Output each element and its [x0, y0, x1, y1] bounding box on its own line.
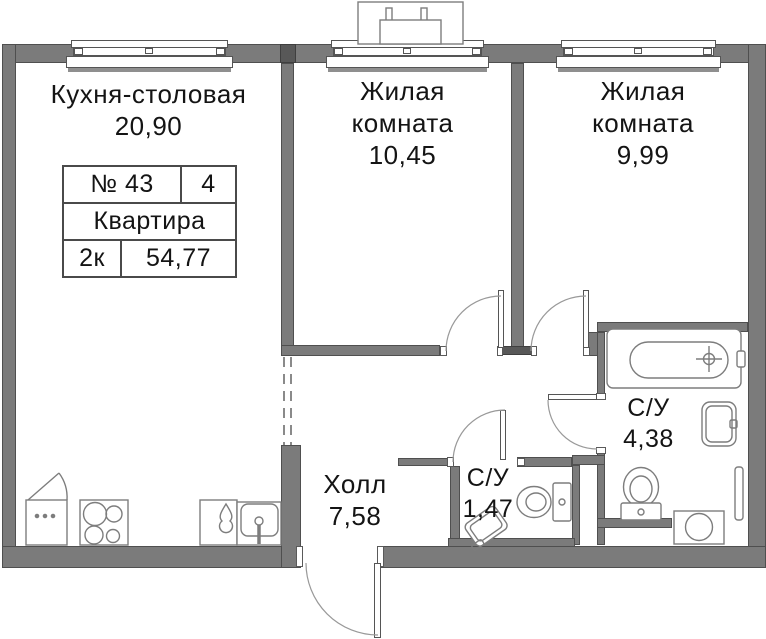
living1-name-line2: комната: [294, 107, 511, 139]
wc-small-area: 1,47: [446, 494, 530, 525]
wall-left: [2, 44, 16, 568]
wall-hall-top: [281, 345, 440, 356]
door-jamb: [296, 546, 303, 567]
wall-wc-big-left-upper: [597, 332, 605, 394]
wc-big-name: С/У: [606, 393, 691, 424]
door-leaf-wc-big: [548, 394, 597, 400]
washbasin-icon: [702, 402, 737, 446]
wall-wc-small-bottom: [448, 538, 575, 547]
dashed-boundary-line: [290, 357, 292, 445]
wall-wc-small-top-left: [398, 458, 453, 466]
wc-big-area: 4,38: [606, 424, 691, 455]
living2-name-line1: Жилая: [527, 75, 759, 107]
window-sill-shadow: [68, 68, 231, 72]
window-mark: [564, 48, 573, 55]
hall-area: 7,58: [290, 500, 420, 532]
door-jamb: [596, 447, 606, 454]
door-arc-living2: [531, 296, 586, 351]
door-jamb: [440, 346, 447, 356]
apartment-rooms-code: 2к: [64, 241, 120, 276]
kitchen-name: Кухня-столовая: [16, 78, 281, 110]
apartment-unit-count: 4: [180, 167, 235, 202]
towel-rail-icon: [735, 467, 743, 520]
apartment-number: № 43: [64, 167, 180, 202]
door-leaf-living2: [583, 290, 589, 348]
wall-shaft-cap: [572, 455, 605, 465]
toilet-icon: [621, 468, 661, 521]
door-jamb: [583, 347, 590, 356]
room-label-wc-small: С/У 1,47: [446, 463, 530, 525]
window-mark: [216, 48, 225, 55]
room-label-wc-big: С/У 4,38: [606, 393, 691, 455]
wall-wc-small-right: [572, 465, 580, 545]
apartment-type: Квартира: [64, 204, 235, 239]
vent-shaft: [580, 465, 595, 545]
window-mark: [145, 48, 153, 54]
room-label-kitchen: Кухня-столовая 20,90: [16, 78, 281, 142]
window-mark: [74, 48, 83, 55]
washing-machine-icon: [674, 511, 724, 544]
ac-basket-icon: [358, 2, 463, 44]
kitchen-area: 20,90: [16, 110, 281, 142]
wall-wc-big-left-lower: [597, 453, 605, 545]
window-mark: [634, 48, 642, 54]
teardrop-cabinet-icon: [200, 500, 237, 545]
wall-toilet-niche: [597, 518, 672, 528]
door-jamb: [596, 393, 606, 400]
window-sill-shadow: [328, 68, 487, 72]
bathtub-icon: [607, 329, 745, 388]
room-label-hall: Холл 7,58: [290, 468, 420, 532]
wall-living1-living2: [511, 63, 524, 348]
window-living1-sill: [326, 56, 489, 68]
wc-small-name: С/У: [446, 463, 530, 494]
living1-area: 10,45: [294, 139, 511, 171]
window-mark: [472, 48, 481, 55]
window-kitchen-sill: [66, 56, 233, 68]
apartment-total-area: 54,77: [120, 241, 235, 276]
living2-name-line2: комната: [527, 107, 759, 139]
wall-wc-big-top: [597, 322, 748, 332]
wall-divider-base: [502, 346, 532, 355]
window-mark: [403, 48, 411, 54]
info-row-type: Квартира: [64, 202, 235, 239]
wall-junction-top: [280, 44, 296, 63]
room-label-living2: Жилая комната 9,99: [527, 75, 759, 171]
apartment-info-table: № 43 4 Квартира 2к 54,77: [62, 165, 237, 278]
door-arc-living1: [446, 296, 501, 351]
door-arc-wc-small: [453, 410, 505, 462]
room-label-living1: Жилая комната 10,45: [294, 75, 511, 171]
floor-plan: Кухня-столовая 20,90 Жилая комната 10,45…: [0, 0, 766, 639]
wall-bottom-right: [377, 546, 766, 568]
living1-name-line1: Жилая: [294, 75, 511, 107]
dashed-boundary-line: [283, 357, 285, 445]
door-leaf-wc-small: [500, 410, 506, 460]
door-arc-wc-big: [548, 400, 597, 449]
fridge-icon: [26, 473, 67, 545]
hall-name: Холл: [290, 468, 420, 500]
window-mark: [334, 48, 343, 55]
door-jamb: [531, 346, 537, 356]
wall-kitchen-living1: [281, 63, 294, 356]
living2-area: 9,99: [527, 139, 759, 171]
stove-icon: [80, 500, 128, 545]
info-row-number: № 43 4: [64, 167, 235, 202]
window-living2-sill: [556, 56, 721, 68]
wall-bottom-left: [2, 546, 301, 568]
window-mark: [703, 48, 712, 55]
door-leaf-living1: [498, 290, 504, 348]
info-row-area: 2к 54,77: [64, 239, 235, 276]
door-leaf-entrance: [374, 563, 381, 638]
kitchen-sink-icon: [237, 502, 281, 545]
door-arc-entrance: [306, 563, 378, 635]
window-sill-shadow: [558, 68, 719, 72]
